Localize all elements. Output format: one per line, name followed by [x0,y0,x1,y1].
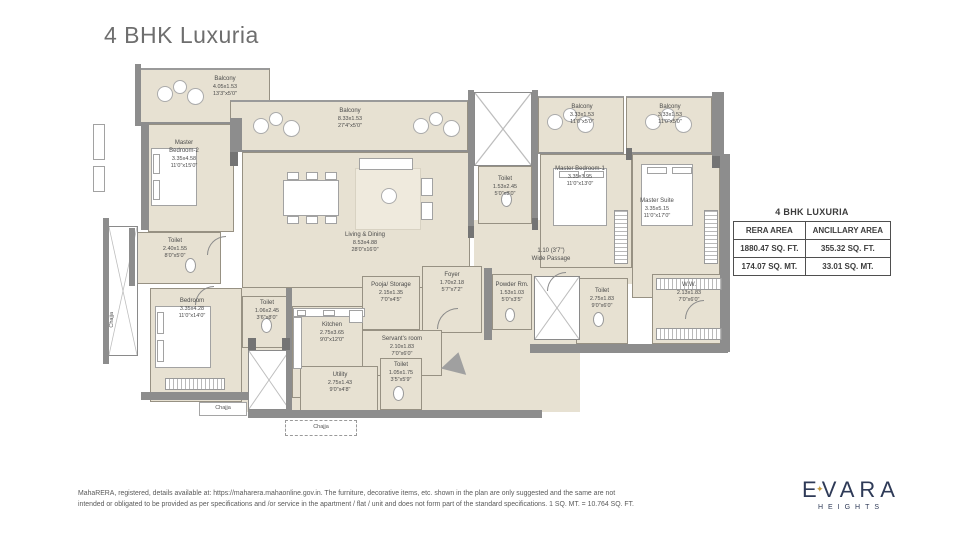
chair-icon [325,172,337,180]
room-label-living-dining: Living & Dining 8.53x4.88 28'0"x16'0" [310,232,420,254]
room-label-servants-room: Servant's room 2.10x1.83 7'0"x6'0" [364,336,440,358]
room-dim-ft: 11'0"x14'0" [159,313,225,320]
wall [532,90,538,224]
room-dim-m: 3.33x1.53 [547,112,617,119]
wall [720,154,730,352]
room-label-toilet-master: Toilet 2.75x1.83 9'0"x6'0" [579,288,625,310]
page-title: 4 BHK Luxuria [104,22,259,49]
room-name: Powder Rm. [492,282,532,290]
room-dim-m: 2.15x1.35 [364,290,418,297]
wall [129,228,135,286]
pillow-icon [153,180,160,200]
room-dim-ft: 9'0"x4'8" [309,387,371,394]
passage-dim: 1.10 (3'7") [513,248,589,256]
room-dim-ft: 11'0"x5'0" [635,119,705,126]
pillow-icon [153,154,160,174]
room-label-toilet-common: Toilet 1.53x2.45 5'0"x8'0" [480,176,530,198]
sofa-icon [359,158,413,170]
chair-icon [287,216,299,224]
room-name: Pooja/ Storage [364,282,418,290]
room-name: Master Bedroom-1 [555,166,605,174]
room-dim-ft: 27'4"x5'0" [305,123,395,130]
room-name: Toilet [242,300,292,308]
room-dim-m: 1.05x1.75 [381,370,421,377]
room-name: Utility [309,372,371,380]
wall [103,218,109,364]
plant-icon [429,112,443,126]
room-dim-ft: 11'0"x17'0" [625,213,689,220]
room-name: Foyer [424,272,480,280]
area-table: 4 BHK LUXURIA RERA AREA ANCILLARY AREA 1… [733,207,891,276]
room-dim-m: 3.33x1.53 [635,112,705,119]
duct-box [93,166,105,192]
plant-icon [269,112,283,126]
wc-icon [393,386,404,401]
room-name: Toilet [140,238,210,246]
room-name: W.W. [659,282,719,290]
room-dim-ft: 9'0"x6'0" [579,303,625,310]
wardrobe-icon [165,378,225,390]
room-dim-m: 8.33x1.53 [305,116,395,123]
chajja-label-vertical: Chajja [109,312,115,328]
room-dim-m: 3.35x4.28 [159,306,225,313]
duct-box [93,124,105,160]
room-label-balcony-center: Balcony 8.33x1.53 27'4"x5'0" [305,108,395,130]
room-dim-m: 2.75x1.83 [579,296,625,303]
room-label-balcony-right-2: Balcony 3.33x1.53 11'0"x5'0" [635,104,705,126]
sink-icon [297,310,306,316]
plant-icon [253,118,269,134]
wall [468,90,474,226]
area-cell: 355.32 SQ. FT. [805,240,890,258]
room-dim-m: 1.53x1.03 [492,290,532,297]
wall [712,92,724,156]
pillow-icon [157,340,164,362]
room-name: Balcony [635,104,705,112]
room-dim-m: 2.75x3.65 [301,330,363,337]
wall-column [248,338,256,350]
floor-plan: Chajja Chajja Chajja Balcony 4.05x1.53 1… [85,60,735,448]
wardrobe-icon [704,210,718,264]
room-dim-m: 1.70x2.18 [424,280,480,287]
room-dim-m: 3.35x3.95 [555,174,605,181]
wall-column [532,218,538,230]
room-dim-ft: 13'3"x5'0" [180,91,270,98]
room-label-toilet-servant: Toilet 1.05x1.75 3'5"x5'9" [381,362,421,384]
room-label-foyer: Foyer 1.70x2.18 5'7"x7'2" [424,272,480,294]
room-label-pooja-storage: Pooja/ Storage 2.15x1.35 7'0"x4'5" [364,282,418,304]
area-cell: 33.01 SQ. MT. [805,258,890,276]
wall-column [282,338,290,350]
room-label-utility: Utility 2.75x1.43 9'0"x4'8" [309,372,371,394]
wc-icon [505,308,515,322]
armchair-icon [421,178,433,196]
room-dim-ft: 3'6"x8'0" [242,315,292,322]
disclaimer-text: MahaRERA, registered, details available … [78,488,638,510]
armchair-icon [421,202,433,220]
room-dim-ft: 5'7"x7'2" [424,287,480,294]
room-label-toilet-bedroom: Toilet 1.06x2.45 3'6"x8'0" [242,300,292,322]
chajja-label-box: Chajja [199,402,247,416]
area-table-title: 4 BHK LUXURIA [733,207,891,217]
chajja-label-dashed: Chajja [285,420,357,436]
wc-icon [185,258,196,273]
room-label-walk-in-wardrobe: W.W. 2.13x1.83 7'0"x6'0" [659,282,719,304]
dining-table-icon [283,180,339,216]
room-dim-ft: 11'0"x13'0" [555,181,605,188]
duct-shaft-bedroom [248,350,290,410]
room-name: Toilet [381,362,421,370]
wall-column [626,148,632,160]
room-label-wide-passage: 1.10 (3'7") Wide Passage [513,248,589,264]
pillow-icon [647,167,667,174]
chair-icon [325,216,337,224]
wall-column [468,226,474,238]
area-cell: 174.07 SQ. MT. [734,258,806,276]
room-name: Servant's room [364,336,440,344]
room-name: Living & Dining [310,232,420,240]
room-name: Master Suite [625,198,689,206]
room-name: Balcony [305,108,395,116]
chair-icon [287,172,299,180]
wall [135,64,141,126]
plant-icon [443,120,460,137]
wc-icon [593,312,604,327]
room-dim-ft: 9'0"x12'0" [301,337,363,344]
room-label-toilet-left: Toilet 2.40x1.55 8'0"x5'0" [140,238,210,260]
area-cell: 1880.47 SQ. FT. [734,240,806,258]
room-name: Balcony [180,76,270,84]
brand-logo: EVARA ✦ HEIGHTS [795,477,907,511]
room-label-bedroom: Bedroom 3.35x4.28 11'0"x14'0" [159,298,225,320]
room-dim-m: 2.10x1.83 [364,344,440,351]
room-dim-ft: 5'0"x8'0" [480,191,530,198]
room-dim-ft: 7'0"x4'5" [364,297,418,304]
room-name: Toilet [579,288,625,296]
room-dim-m: 3.35x5.15 [625,206,689,213]
room-dim-m: 2.40x1.55 [140,246,210,253]
room-name: Master Bedroom-2 [161,140,207,156]
room-dim-ft: 11'0"x5'0" [547,119,617,126]
wall [141,392,249,400]
plant-icon [413,118,429,134]
room-label-balcony-top-left: Balcony 4.05x1.53 13'3"x5'0" [180,76,270,98]
room-dim-ft: 3'5"x5'9" [381,377,421,384]
room-dim-m: 2.75x1.43 [309,380,371,387]
room-dim-ft: 7'0"x6'0" [364,351,440,358]
room-name: Balcony [547,104,617,112]
room-dim-m: 2.13x1.83 [659,290,719,297]
room-dim-ft: 5'0"x3'5" [492,297,532,304]
wall [530,344,728,353]
room-label-powder-room: Powder Rm. 1.53x1.03 5'0"x3'5" [492,282,532,304]
wall-column [712,156,720,168]
room-dim-m: 3.35x4.58 [161,156,207,163]
room-dim-m: 1.53x2.45 [480,184,530,191]
sparkle-icon: ✦ [816,484,824,495]
coffee-table-icon [381,188,397,204]
room-label-master-suite: Master Suite 3.35x5.15 11'0"x17'0" [625,198,689,220]
wall [248,410,542,418]
brand-subtitle: HEIGHTS [795,504,907,511]
room-name: Toilet [480,176,530,184]
lift-shaft [474,92,532,166]
room-label-balcony-right-1: Balcony 3.33x1.53 11'0"x5'0" [547,104,617,126]
room-label-kitchen: Kitchen 2.75x3.65 9'0"x12'0" [301,322,363,344]
wall [484,268,492,340]
room-label-master-bedroom-2: Master Bedroom-2 3.35x4.58 11'0"x15'0" [161,140,207,170]
room-dim-ft: 11'0"x15'0" [161,163,207,170]
room-dim-ft: 7'0"x6'0" [659,297,719,304]
chair-icon [306,216,318,224]
wall [141,122,149,230]
room-dim-m: 4.05x1.53 [180,84,270,91]
floor-plan-page: 4 BHK Luxuria [0,0,957,533]
plant-icon [283,120,300,137]
wardrobe-icon [656,328,722,340]
chair-icon [306,172,318,180]
area-table-grid: RERA AREA ANCILLARY AREA 1880.47 SQ. FT.… [733,221,891,276]
room-dim-ft: 8'0"x5'0" [140,253,210,260]
wall-column [230,152,238,166]
wall [230,118,242,152]
hob-icon [323,310,335,316]
room-name: Bedroom [159,298,225,306]
passage-name: Wide Passage [513,256,589,264]
room-dim-ft: 28'0"x16'0" [310,247,420,254]
brand-name: EVARA ✦ [802,477,900,503]
area-col-header: ANCILLARY AREA [805,222,890,240]
room-dim-m: 1.06x2.45 [242,308,292,315]
area-col-header: RERA AREA [734,222,806,240]
pillow-icon [672,167,692,174]
room-dim-m: 8.53x4.88 [310,240,420,247]
room-name: Kitchen [301,322,363,330]
room-label-master-bedroom-1: Master Bedroom-1 3.35x3.95 11'0"x13'0" [555,166,605,188]
plant-icon [157,86,173,102]
